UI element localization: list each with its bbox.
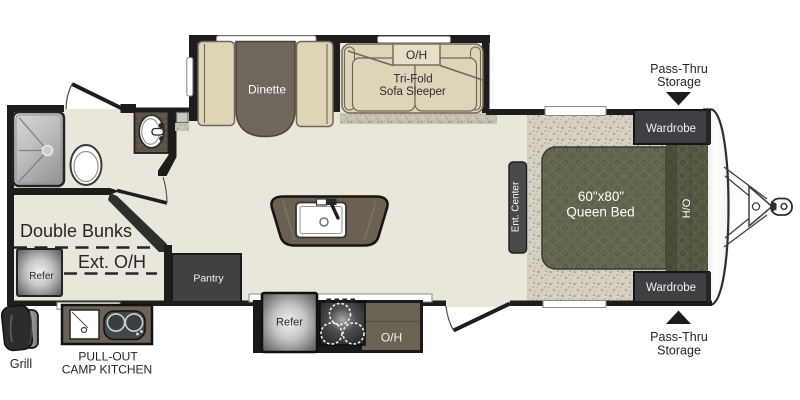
svg-text:O/H: O/H <box>406 48 427 62</box>
svg-text:Refer: Refer <box>29 271 54 282</box>
svg-text:Tri-Fold: Tri-Fold <box>393 74 432 86</box>
svg-text:O/H: O/H <box>381 331 402 345</box>
svg-text:Wardrobe: Wardrobe <box>646 123 696 135</box>
svg-text:Ext. O/H: Ext. O/H <box>78 252 146 272</box>
svg-text:Pantry: Pantry <box>193 273 224 285</box>
svg-text:Storage: Storage <box>657 344 701 358</box>
svg-text:Pass-Thru: Pass-Thru <box>650 62 708 76</box>
svg-text:Ent. Center: Ent. Center <box>510 181 521 232</box>
svg-text:CAMP KITCHEN: CAMP KITCHEN <box>62 363 152 377</box>
svg-text:Storage: Storage <box>657 75 701 89</box>
svg-text:Grill: Grill <box>10 357 32 371</box>
svg-text:Pass-Thru: Pass-Thru <box>650 330 708 344</box>
svg-text:60"x80": 60"x80" <box>578 189 625 204</box>
svg-text:PULL-OUT: PULL-OUT <box>78 350 138 364</box>
svg-text:Wardrobe: Wardrobe <box>646 282 696 294</box>
svg-text:Queen Bed: Queen Bed <box>566 205 634 220</box>
svg-text:Refer: Refer <box>276 317 303 329</box>
svg-text:Sofa Sleeper: Sofa Sleeper <box>379 86 446 98</box>
svg-text:Double Bunks: Double Bunks <box>20 221 132 241</box>
svg-text:H/O: H/O <box>681 198 693 218</box>
svg-text:Dinette: Dinette <box>248 83 286 97</box>
